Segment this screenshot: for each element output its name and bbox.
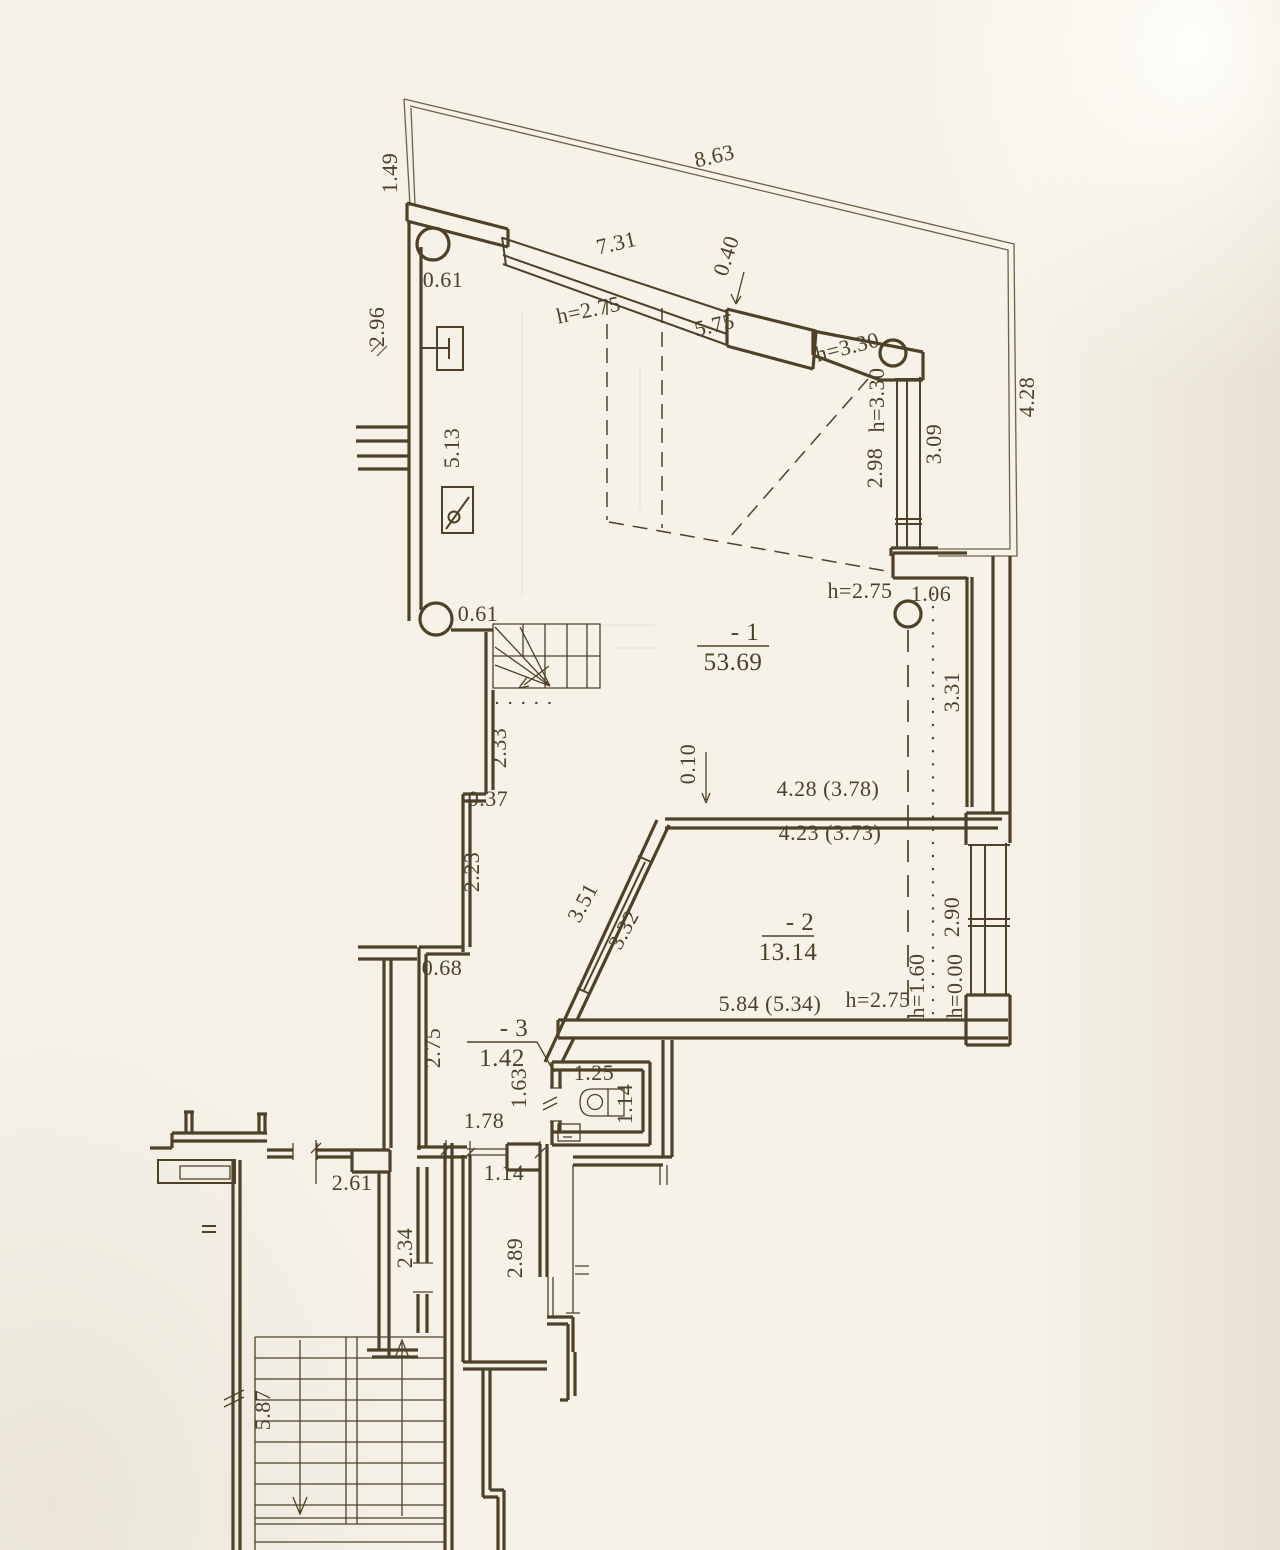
dimension-label: 1.49 <box>377 153 402 194</box>
dimension-label: 0.61 <box>423 267 464 292</box>
dimension-label: 3.09 <box>921 424 946 465</box>
dimension-label: 2.23 <box>459 852 484 893</box>
dimension-label: 5.87 <box>250 1390 275 1431</box>
dimension-label: 2.33 <box>486 728 511 769</box>
dimension-label: 1.14 <box>612 1084 637 1125</box>
dimension-label: h=3.30 <box>864 368 889 433</box>
dimension-label: 1.63 <box>506 1068 531 1109</box>
room-number: - 3 <box>500 1015 529 1042</box>
dimension-label: 0.68 <box>422 955 463 980</box>
dimension-label: 2.89 <box>502 1238 527 1279</box>
floor-plan-drawing: - 153.69- 213.14- 31.42 1.498.637.310.40… <box>0 0 1280 1550</box>
dimension-label: 1.06 <box>911 581 952 606</box>
dimension-label: 5.84 (5.34) <box>719 991 822 1016</box>
dimension-label: 2.34 <box>392 1228 417 1269</box>
dimension-label: h=2.75 <box>846 987 911 1012</box>
dimension-label: 0.10 <box>675 744 700 785</box>
dimension-label: 2.98 <box>862 448 887 489</box>
room-area: 53.69 <box>704 649 763 676</box>
dimension-label: 0.37 <box>468 786 509 811</box>
dimension-label: 2.61 <box>332 1170 373 1195</box>
dimension-label: 2.90 <box>939 897 964 938</box>
room-area: 13.14 <box>759 939 818 966</box>
dimension-label: h=1.60 <box>904 954 929 1019</box>
room-number: - 1 <box>731 619 760 646</box>
dimension-label: 1.78 <box>464 1108 505 1133</box>
dimension-label: h=0.00 <box>942 954 967 1019</box>
dimension-label: 2.75 <box>420 1028 445 1069</box>
dimension-label: 2.96 <box>364 307 389 348</box>
paper-background <box>0 0 1280 1550</box>
dimension-label: 3.31 <box>939 672 964 713</box>
scanned-floor-plan-page: - 153.69- 213.14- 31.42 1.498.637.310.40… <box>0 0 1280 1550</box>
room-number: - 2 <box>786 909 815 936</box>
dimension-label: 5.13 <box>439 428 464 469</box>
dimension-label: 4.23 (3.73) <box>779 820 882 845</box>
dimension-label: 4.28 (3.78) <box>777 776 880 801</box>
dimension-label: 0.61 <box>458 601 499 626</box>
dimension-label: 4.28 <box>1014 377 1039 418</box>
dimension-label: h=2.75 <box>828 578 893 603</box>
dimension-label: 1.14 <box>484 1160 525 1185</box>
dimension-label: 1.25 <box>574 1060 615 1085</box>
